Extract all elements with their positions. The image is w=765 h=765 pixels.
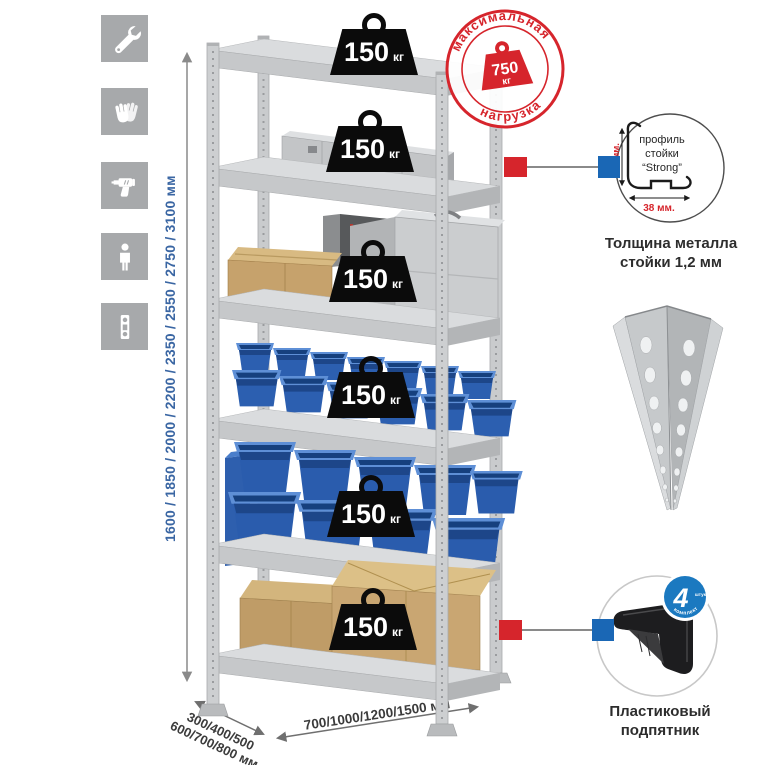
- profile-detail-circle: 38 мм. 38 мм. профиль стойки “Strong”: [613, 111, 727, 225]
- callout-marker-profile: [504, 157, 527, 177]
- drill-icon: [101, 162, 148, 209]
- shelf-weight-5: 150кг: [327, 475, 415, 537]
- shelf-weight-2: 150кг: [326, 110, 414, 172]
- included-count-badge: 4 штуки в комплекте: [661, 573, 709, 621]
- wrench-glyph: [108, 22, 142, 56]
- shelf-weight-6: 150кг: [329, 588, 417, 650]
- svg-text:“Strong”: “Strong”: [642, 162, 682, 174]
- callout-line-foot: [522, 629, 592, 631]
- level-glyph: [108, 310, 142, 344]
- profile-dim-horizontal: 38 мм.: [643, 203, 675, 214]
- callout-marker-foot: [499, 620, 522, 640]
- callout-line-profile: [527, 166, 598, 168]
- person-glyph: [108, 240, 142, 274]
- stamp-unit: кг: [502, 75, 512, 87]
- profile-label: профиль стойки “Strong”: [639, 134, 685, 174]
- gloves-glyph: [108, 95, 142, 129]
- wrench-icon: [101, 15, 148, 62]
- callout-endpoint-profile: [598, 156, 620, 178]
- shelf-weight-1: 150кг: [330, 13, 418, 75]
- product-infographic: 1600 / 1850 / 2000 / 2200 / 2350 / 2550 …: [0, 0, 765, 765]
- level-icon: [101, 303, 148, 350]
- gloves-icon: [101, 88, 148, 135]
- svg-text:профиль: профиль: [639, 134, 685, 146]
- shelf-weight-4: 150кг: [327, 356, 415, 418]
- height-dimension-label: 1600 / 1850 / 2000 / 2200 / 2350 / 2550 …: [162, 202, 178, 542]
- svg-text:стойки: стойки: [645, 148, 679, 160]
- callout-endpoint-foot: [592, 619, 614, 641]
- person-icon: [101, 233, 148, 280]
- max-load-stamp: максимальная нагрузка 750 кг: [435, 0, 575, 139]
- profile-caption: Толщина металла стойки 1,2 мм: [597, 234, 745, 272]
- corner-post-image: [597, 298, 747, 523]
- foot-caption: Пластиковый подпятник: [600, 702, 720, 740]
- drill-glyph: [108, 169, 142, 203]
- badge-note: штуки: [695, 592, 709, 597]
- shelf-weight-3: 150кг: [329, 240, 417, 302]
